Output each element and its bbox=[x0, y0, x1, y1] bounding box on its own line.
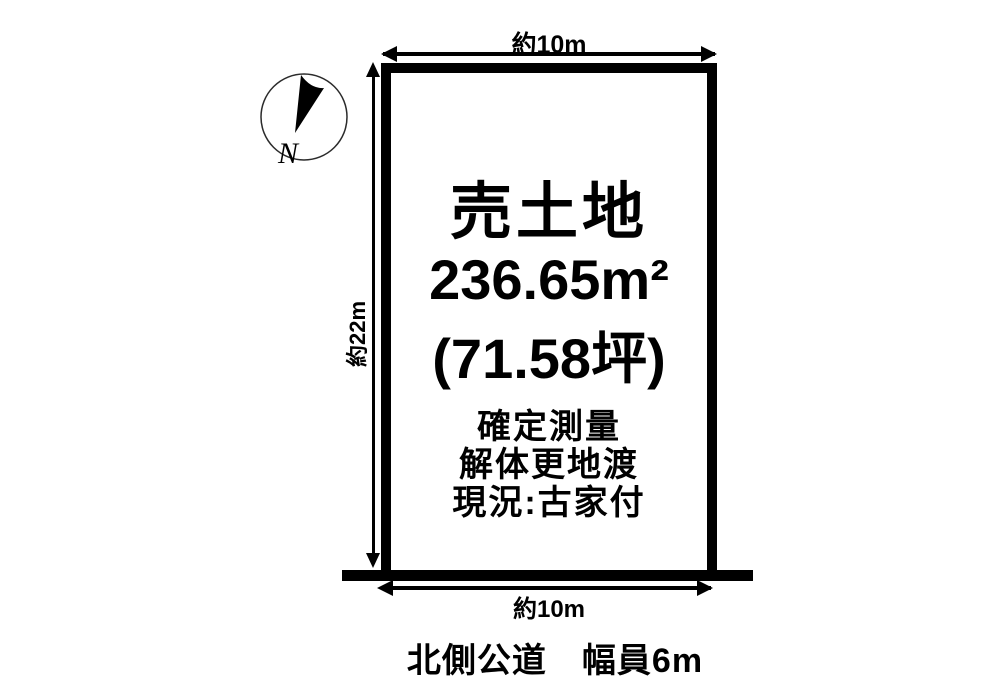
bottom-dimension-label: 約10m bbox=[381, 589, 717, 624]
plot-note-survey: 確定測量 bbox=[381, 408, 717, 446]
compass-north-icon: N bbox=[258, 71, 352, 165]
left-dimension-line bbox=[372, 70, 375, 564]
left-arrowhead-up-icon bbox=[366, 62, 380, 77]
plot-note-condition: 現況:古家付 bbox=[381, 484, 717, 522]
road-line bbox=[342, 570, 753, 581]
plot-area-sqm: 236.65m² bbox=[381, 247, 717, 312]
plot-notes: 確定測量 解体更地渡 現況:古家付 bbox=[381, 408, 717, 522]
plot-note-demolition: 解体更地渡 bbox=[381, 446, 717, 484]
compass-needle-icon bbox=[295, 75, 324, 133]
left-dimension-label: 約22m bbox=[340, 299, 372, 369]
top-dimension-label: 約10m bbox=[381, 25, 717, 61]
road-label: 北側公道 幅員6m bbox=[348, 633, 762, 682]
land-plot-diagram: N 約10m 約22m 約10m 売土地 236.65m² (71.58坪) 確… bbox=[0, 0, 1000, 700]
compass-label: N bbox=[277, 137, 300, 165]
plot-title: 売土地 bbox=[381, 161, 717, 251]
left-arrowhead-down-icon bbox=[366, 553, 380, 568]
plot-area-tsubo: (71.58坪) bbox=[381, 314, 717, 395]
